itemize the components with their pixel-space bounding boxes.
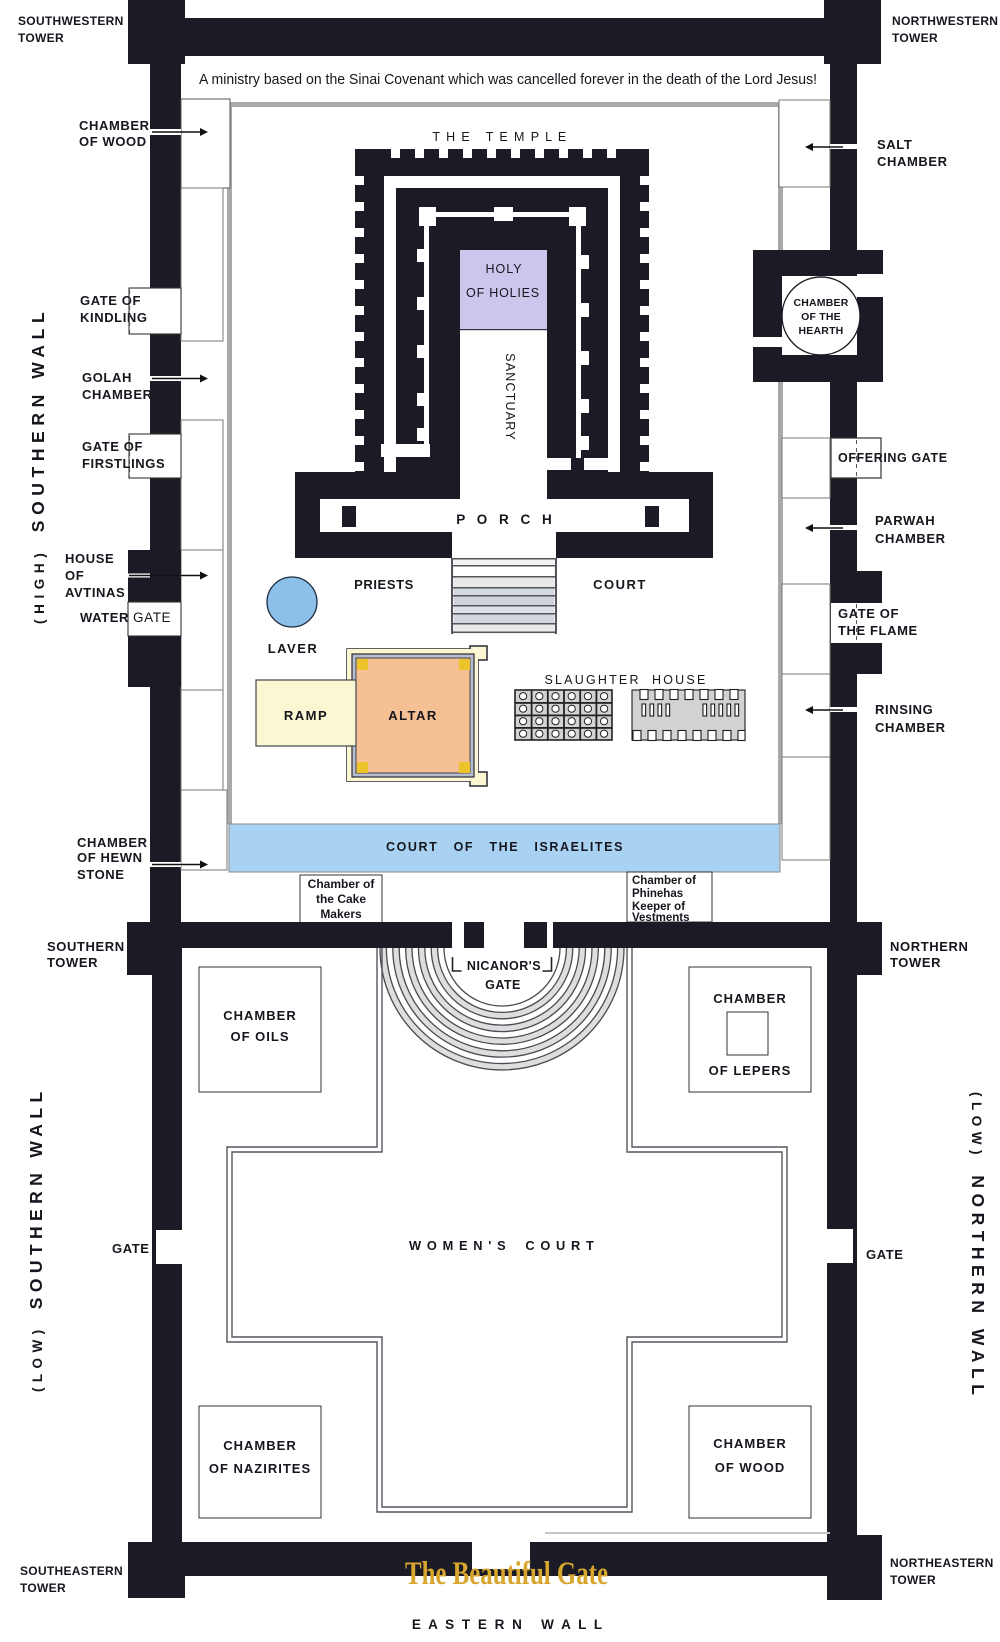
- svg-text:CHAMBER: CHAMBER: [223, 1438, 296, 1453]
- svg-text:PARWAH: PARWAH: [875, 513, 935, 528]
- svg-text:AVTINAS: AVTINAS: [65, 585, 125, 600]
- svg-text:GATE OF: GATE OF: [82, 439, 143, 454]
- svg-text:TOWER: TOWER: [18, 31, 64, 45]
- svg-text:Chamber of: Chamber of: [632, 875, 696, 887]
- svg-text:NORTHEASTERN: NORTHEASTERN: [890, 1556, 994, 1570]
- svg-text:OFFERING GATE: OFFERING GATE: [838, 451, 948, 465]
- svg-text:SANCTUARY: SANCTUARY: [503, 353, 517, 441]
- svg-text:A ministry based on the Sinai: A ministry based on the Sinai Covenant w…: [199, 72, 817, 88]
- svg-text:CHAMBER: CHAMBER: [877, 154, 948, 169]
- svg-text:CHAMBER: CHAMBER: [713, 1436, 786, 1451]
- svg-text:OF: OF: [65, 568, 84, 583]
- svg-text:TOWER: TOWER: [890, 955, 941, 970]
- svg-text:CHAMBER: CHAMBER: [77, 835, 148, 850]
- svg-text:the Cake: the Cake: [316, 892, 366, 906]
- svg-text:HOLY: HOLY: [485, 262, 522, 276]
- svg-text:GATE: GATE: [485, 978, 521, 992]
- svg-text:OF WOOD: OF WOOD: [715, 1460, 786, 1475]
- svg-text:OF WOOD: OF WOOD: [79, 134, 147, 149]
- svg-text:WATER: WATER: [80, 610, 129, 625]
- svg-text:SOUTHERN: SOUTHERN: [47, 939, 125, 954]
- svg-text:OF HEWN: OF HEWN: [77, 850, 143, 865]
- svg-text:GATE: GATE: [133, 610, 171, 625]
- svg-text:COURT OF THE ISRAELITES: COURT OF THE ISRAELITES: [386, 840, 624, 854]
- svg-text:KINDLING: KINDLING: [80, 310, 148, 325]
- svg-text:CHAMBER: CHAMBER: [713, 991, 786, 1006]
- svg-text:TOWER: TOWER: [20, 1581, 66, 1595]
- svg-text:COURT: COURT: [593, 577, 647, 592]
- svg-text:OF LEPERS: OF LEPERS: [709, 1063, 792, 1078]
- svg-text:TOWER: TOWER: [47, 955, 98, 970]
- svg-text:ALTAR: ALTAR: [388, 708, 438, 723]
- svg-text:PRIESTS: PRIESTS: [354, 577, 414, 592]
- svg-text:The Beautiful Gate: The Beautiful Gate: [405, 1556, 608, 1592]
- svg-text:P O R C H: P O R C H: [456, 512, 556, 527]
- svg-text:GATE OF: GATE OF: [80, 293, 141, 308]
- svg-text:OF HOLIES: OF HOLIES: [466, 286, 540, 300]
- svg-text:NORTHERN: NORTHERN: [890, 939, 968, 954]
- svg-text:GATE OF: GATE OF: [838, 606, 899, 621]
- svg-text:OF OILS: OF OILS: [231, 1029, 290, 1044]
- svg-text:GATE: GATE: [112, 1241, 150, 1256]
- svg-text:STONE: STONE: [77, 867, 125, 882]
- svg-text:GATE: GATE: [866, 1247, 904, 1262]
- svg-text:OF THE: OF THE: [801, 311, 841, 323]
- svg-text:CHAMBER: CHAMBER: [875, 531, 946, 546]
- svg-text:Makers: Makers: [320, 907, 362, 921]
- svg-text:TOWER: TOWER: [892, 31, 938, 45]
- svg-text:W O M E N ' S C O U R T: W O M E N ' S C O U R T: [409, 1238, 595, 1253]
- svg-text:Chamber of: Chamber of: [308, 877, 376, 891]
- svg-text:LAVER: LAVER: [268, 641, 319, 656]
- svg-text:CHAMBER: CHAMBER: [79, 118, 150, 133]
- svg-text:FIRSTLINGS: FIRSTLINGS: [82, 456, 165, 471]
- svg-text:HOUSE: HOUSE: [65, 551, 114, 566]
- svg-text:NORTHWESTERN: NORTHWESTERN: [892, 14, 998, 28]
- svg-text:OF NAZIRITES: OF NAZIRITES: [209, 1461, 311, 1476]
- svg-text:CHAMBER: CHAMBER: [223, 1008, 296, 1023]
- svg-text:SALT: SALT: [877, 137, 912, 152]
- svg-text:TOWER: TOWER: [890, 1573, 936, 1587]
- svg-text:CHAMBER: CHAMBER: [793, 297, 848, 309]
- svg-text:CHAMBER: CHAMBER: [82, 387, 153, 402]
- svg-text:HEARTH: HEARTH: [799, 325, 844, 337]
- svg-text:RAMP: RAMP: [284, 708, 328, 723]
- svg-text:SLAUGHTER HOUSE: SLAUGHTER HOUSE: [544, 673, 707, 687]
- svg-text:E A S T E R N W A L L: E A S T E R N W A L L: [412, 1617, 604, 1632]
- svg-text:SOUTHEASTERN: SOUTHEASTERN: [20, 1564, 123, 1578]
- svg-text:NICANOR'S: NICANOR'S: [467, 959, 541, 973]
- svg-text:GOLAH: GOLAH: [82, 370, 132, 385]
- svg-text:CHAMBER: CHAMBER: [875, 720, 946, 735]
- svg-text:THE FLAME: THE FLAME: [838, 623, 918, 638]
- svg-text:RINSING: RINSING: [875, 702, 933, 717]
- svg-text:Phinehas: Phinehas: [632, 888, 683, 900]
- svg-text:T H E T E M P L E: T H E T E M P L E: [432, 130, 567, 144]
- svg-text:SOUTHWESTERN: SOUTHWESTERN: [18, 14, 124, 28]
